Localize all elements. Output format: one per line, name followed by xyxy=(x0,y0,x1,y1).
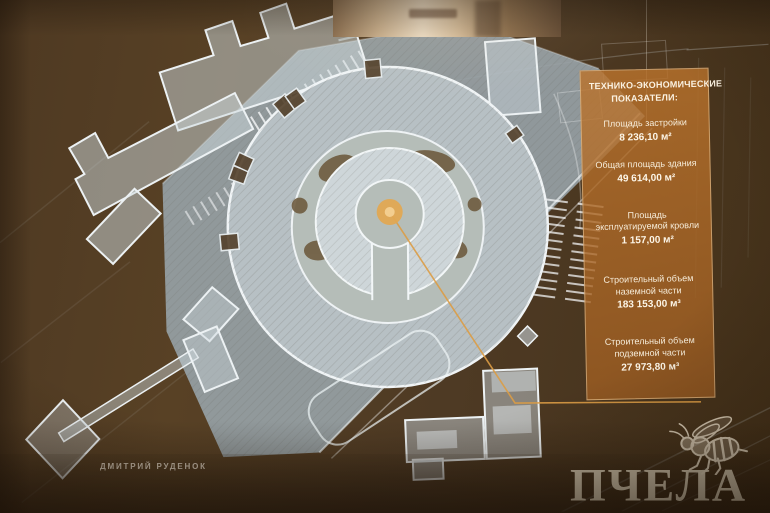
photo-frame: ТЕХНИКО-ЭКОНОМИЧЕСКИЕ ПОКАЗАТЕЛИ: Площад… xyxy=(0,0,770,513)
small-diamond xyxy=(518,326,538,346)
metric-label: Строительный объем наземной части xyxy=(593,273,704,299)
corridor xyxy=(58,349,199,442)
photographer-credit: ДМИТРИЙ РУДЕНОК xyxy=(100,462,207,471)
metric-value: 183 153,00 м³ xyxy=(593,298,704,311)
slide-image-shadow xyxy=(475,0,501,37)
slide-top-image xyxy=(333,0,561,37)
metric-value: 1 157,00 м² xyxy=(592,234,703,247)
panel-title-line1: ТЕХНИКО-ЭКОНОМИЧЕСКИЕ xyxy=(589,78,700,93)
panel-title: ТЕХНИКО-ЭКОНОМИЧЕСКИЕ ПОКАЗАТЕЛИ: xyxy=(589,78,701,106)
watermark-text: ПЧЕЛА xyxy=(570,457,747,511)
metric-above-ground-volume: Строительный объем наземной части 183 15… xyxy=(593,273,705,312)
metric-roof-area: Площадь эксплуатируемой кровли 1 157,00 … xyxy=(592,208,704,247)
metric-value: 49 614,00 м² xyxy=(591,171,702,184)
slide-caption-blur xyxy=(409,9,457,18)
metric-label: Общая площадь здания xyxy=(590,158,701,172)
metric-label: Строительный объем подземной части xyxy=(594,335,705,361)
metric-value: 27 973,80 м³ xyxy=(595,360,706,373)
watermark: ПЧЕЛА xyxy=(570,453,760,505)
metric-label: Площадь застройки xyxy=(590,117,701,131)
metric-underground-volume: Строительный объем подземной части 27 97… xyxy=(594,335,706,374)
panel-title-line2: ПОКАЗАТЕЛИ: xyxy=(589,90,700,105)
metric-total-area: Общая площадь здания 49 614,00 м² xyxy=(590,158,701,185)
indicators-panel: ТЕХНИКО-ЭКОНОМИЧЕСКИЕ ПОКАЗАТЕЛИ: Площад… xyxy=(580,68,716,401)
metric-built-area: Площадь застройки 8 236,10 м² xyxy=(590,117,701,144)
top-right-building xyxy=(485,38,541,116)
metric-value: 8 236,10 м² xyxy=(590,131,701,144)
metric-label: Площадь эксплуатируемой кровли xyxy=(592,208,703,234)
